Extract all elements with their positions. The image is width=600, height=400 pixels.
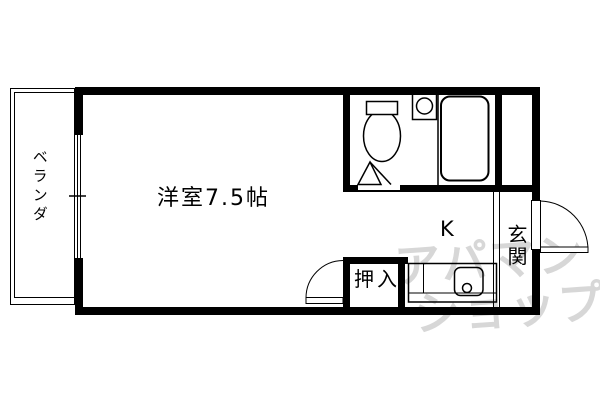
kitchen-counter bbox=[409, 264, 497, 303]
main-room-label: 洋室7.5帖 bbox=[157, 187, 270, 210]
wall-bath-left bbox=[343, 95, 350, 192]
closet-door-leaf bbox=[306, 298, 343, 304]
veranda-label: ベランダ bbox=[31, 149, 47, 225]
walls bbox=[75, 87, 540, 315]
wall-right-lower bbox=[532, 250, 540, 315]
sliding-window bbox=[69, 135, 86, 258]
wall-top bbox=[75, 87, 540, 95]
floor-plan-drawing bbox=[0, 0, 600, 400]
closet-label: 押入 bbox=[354, 269, 400, 290]
wall-right-upper bbox=[532, 87, 540, 200]
wall-bath-bottom-a bbox=[343, 185, 358, 192]
bathtub-icon bbox=[441, 97, 489, 181]
wall-bath-bottom-b bbox=[400, 185, 540, 192]
entrance-door-opening bbox=[532, 201, 541, 250]
wall-bath-right bbox=[495, 95, 502, 185]
floor-plan-canvas: アパマン ショップ bbox=[0, 0, 600, 400]
wall-left-lower bbox=[75, 258, 83, 315]
toilet-door-swing-mark bbox=[358, 162, 381, 185]
entrance-door-leaf bbox=[541, 247, 589, 253]
kitchen-label: K bbox=[440, 218, 454, 240]
kitchen-sink-icon bbox=[455, 268, 484, 296]
entrance-door-swing bbox=[532, 201, 589, 253]
wall-left-upper bbox=[75, 87, 83, 135]
wall-closet-left bbox=[343, 257, 350, 307]
closet-door-swing bbox=[306, 261, 343, 304]
toilet-icon bbox=[358, 102, 401, 185]
entrance-label: 玄関 bbox=[505, 224, 526, 268]
wash-basin-icon bbox=[413, 94, 437, 120]
wall-bottom bbox=[75, 307, 540, 315]
